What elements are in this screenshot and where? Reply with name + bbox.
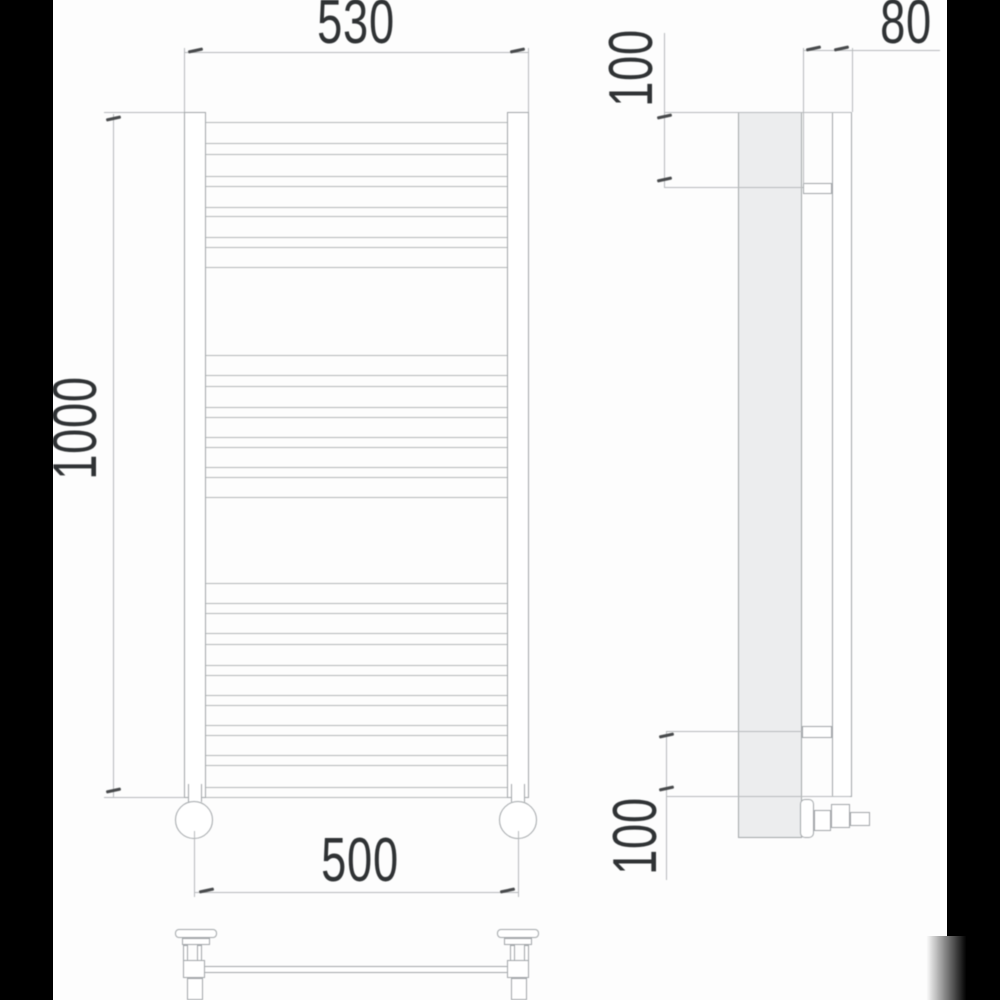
bottom-right-bracket-base: [504, 938, 532, 945]
rung-line: [206, 633, 507, 634]
dim-1000-line: [113, 114, 114, 798]
dim-1000-ext-top: [104, 112, 184, 113]
side-valve-pipe-3: [850, 812, 870, 826]
rung-line: [206, 735, 507, 736]
dim-80-label: 80: [851, 0, 961, 54]
rung-line: [206, 386, 507, 387]
rung-line: [206, 583, 507, 584]
bottom-tube: [205, 966, 508, 973]
rung-line: [206, 695, 507, 696]
side-valve-body: [800, 799, 814, 838]
rung-line: [206, 216, 507, 217]
rung-line: [206, 237, 507, 238]
bottom-right-bracket-cap: [497, 929, 539, 938]
front-left-post: [184, 112, 206, 798]
rung-line: [206, 407, 507, 408]
dim-500-label: 500: [305, 830, 415, 892]
dim-100-bottom-line: [666, 731, 667, 880]
side-wall-tube: [832, 112, 852, 797]
dim-100-bottom-ext-2: [666, 796, 850, 797]
photo-bar-left: [0, 0, 53, 1000]
dim-100-top-ext-1: [664, 112, 852, 113]
rung-line: [206, 644, 507, 645]
rung-line: [206, 267, 507, 268]
dim-1000-label: 1000: [45, 373, 107, 483]
bottom-right-block: [507, 960, 529, 978]
bottom-left-stub: [187, 978, 203, 1000]
front-right-valve-stem: [511, 784, 525, 802]
rung-line: [206, 207, 507, 208]
rung-line: [206, 477, 507, 478]
dim-530-ext-right: [528, 48, 529, 112]
rung-line: [206, 437, 507, 438]
rung-line: [206, 497, 507, 498]
dim-530-ext-left: [184, 48, 185, 112]
bottom-left-leg-1: [183, 945, 188, 961]
dim-80-line: [803, 50, 940, 51]
rung-line: [206, 355, 507, 356]
bottom-right-stub: [511, 978, 527, 1000]
side-upper-bracket: [803, 183, 832, 194]
rung-line: [206, 122, 507, 123]
side-valve-pipe-1: [814, 810, 831, 831]
rung-line: [206, 467, 507, 468]
side-valve-pipe-2: [831, 804, 850, 828]
dim-80-ext-right: [852, 48, 853, 112]
rung-line: [206, 154, 507, 155]
bottom-left-block: [183, 960, 205, 978]
dim-1000-ext-bottom: [104, 797, 184, 798]
rung-line: [206, 603, 507, 604]
rung-line: [206, 675, 507, 676]
dim-500-ext-right: [518, 831, 519, 897]
rung-line: [206, 765, 507, 766]
rung-line: [206, 186, 507, 187]
dim-100-top-label: 100: [601, 13, 663, 123]
rung-line: [206, 797, 507, 798]
technical-drawing-layer: 530 1000 500 80: [0, 0, 1000, 1000]
rung-line: [206, 247, 507, 248]
dim-100-bottom-ext-1: [666, 731, 802, 732]
rung-line: [206, 447, 507, 448]
side-panel: [738, 112, 802, 838]
rung-line: [206, 755, 507, 756]
bottom-right-leg-1: [510, 945, 515, 961]
rung-line: [206, 725, 507, 726]
rung-line: [206, 613, 507, 614]
dim-100-top-ext-2: [664, 187, 803, 188]
rung-line: [206, 417, 507, 418]
bottom-left-bracket-cap: [175, 929, 217, 938]
dim-500-ext-left: [194, 831, 195, 897]
bottom-left-leg-2: [197, 945, 202, 961]
bottom-left-bracket-base: [182, 938, 210, 945]
rung-line: [206, 143, 507, 144]
front-right-post: [507, 112, 529, 798]
drawing-canvas: 530 1000 500 80: [0, 0, 1000, 1000]
dim-530-label: 530: [301, 0, 411, 54]
dim-100-top-line: [664, 33, 665, 187]
dim-530-line: [184, 52, 529, 53]
dim-80-ext-left: [803, 48, 804, 184]
photo-bar-right-fade: [920, 936, 1000, 1000]
dim-500-line: [195, 892, 518, 893]
front-left-valve-stem: [188, 784, 202, 802]
rung-line: [206, 665, 507, 666]
rung-line: [206, 705, 507, 706]
photo-bar-right: [947, 0, 1000, 936]
rung-line: [206, 176, 507, 177]
bottom-right-leg-2: [524, 945, 529, 961]
rung-line: [206, 375, 507, 376]
rung-line: [206, 787, 507, 788]
dim-100-bottom-label: 100: [605, 781, 667, 891]
side-lower-bracket: [802, 726, 832, 738]
